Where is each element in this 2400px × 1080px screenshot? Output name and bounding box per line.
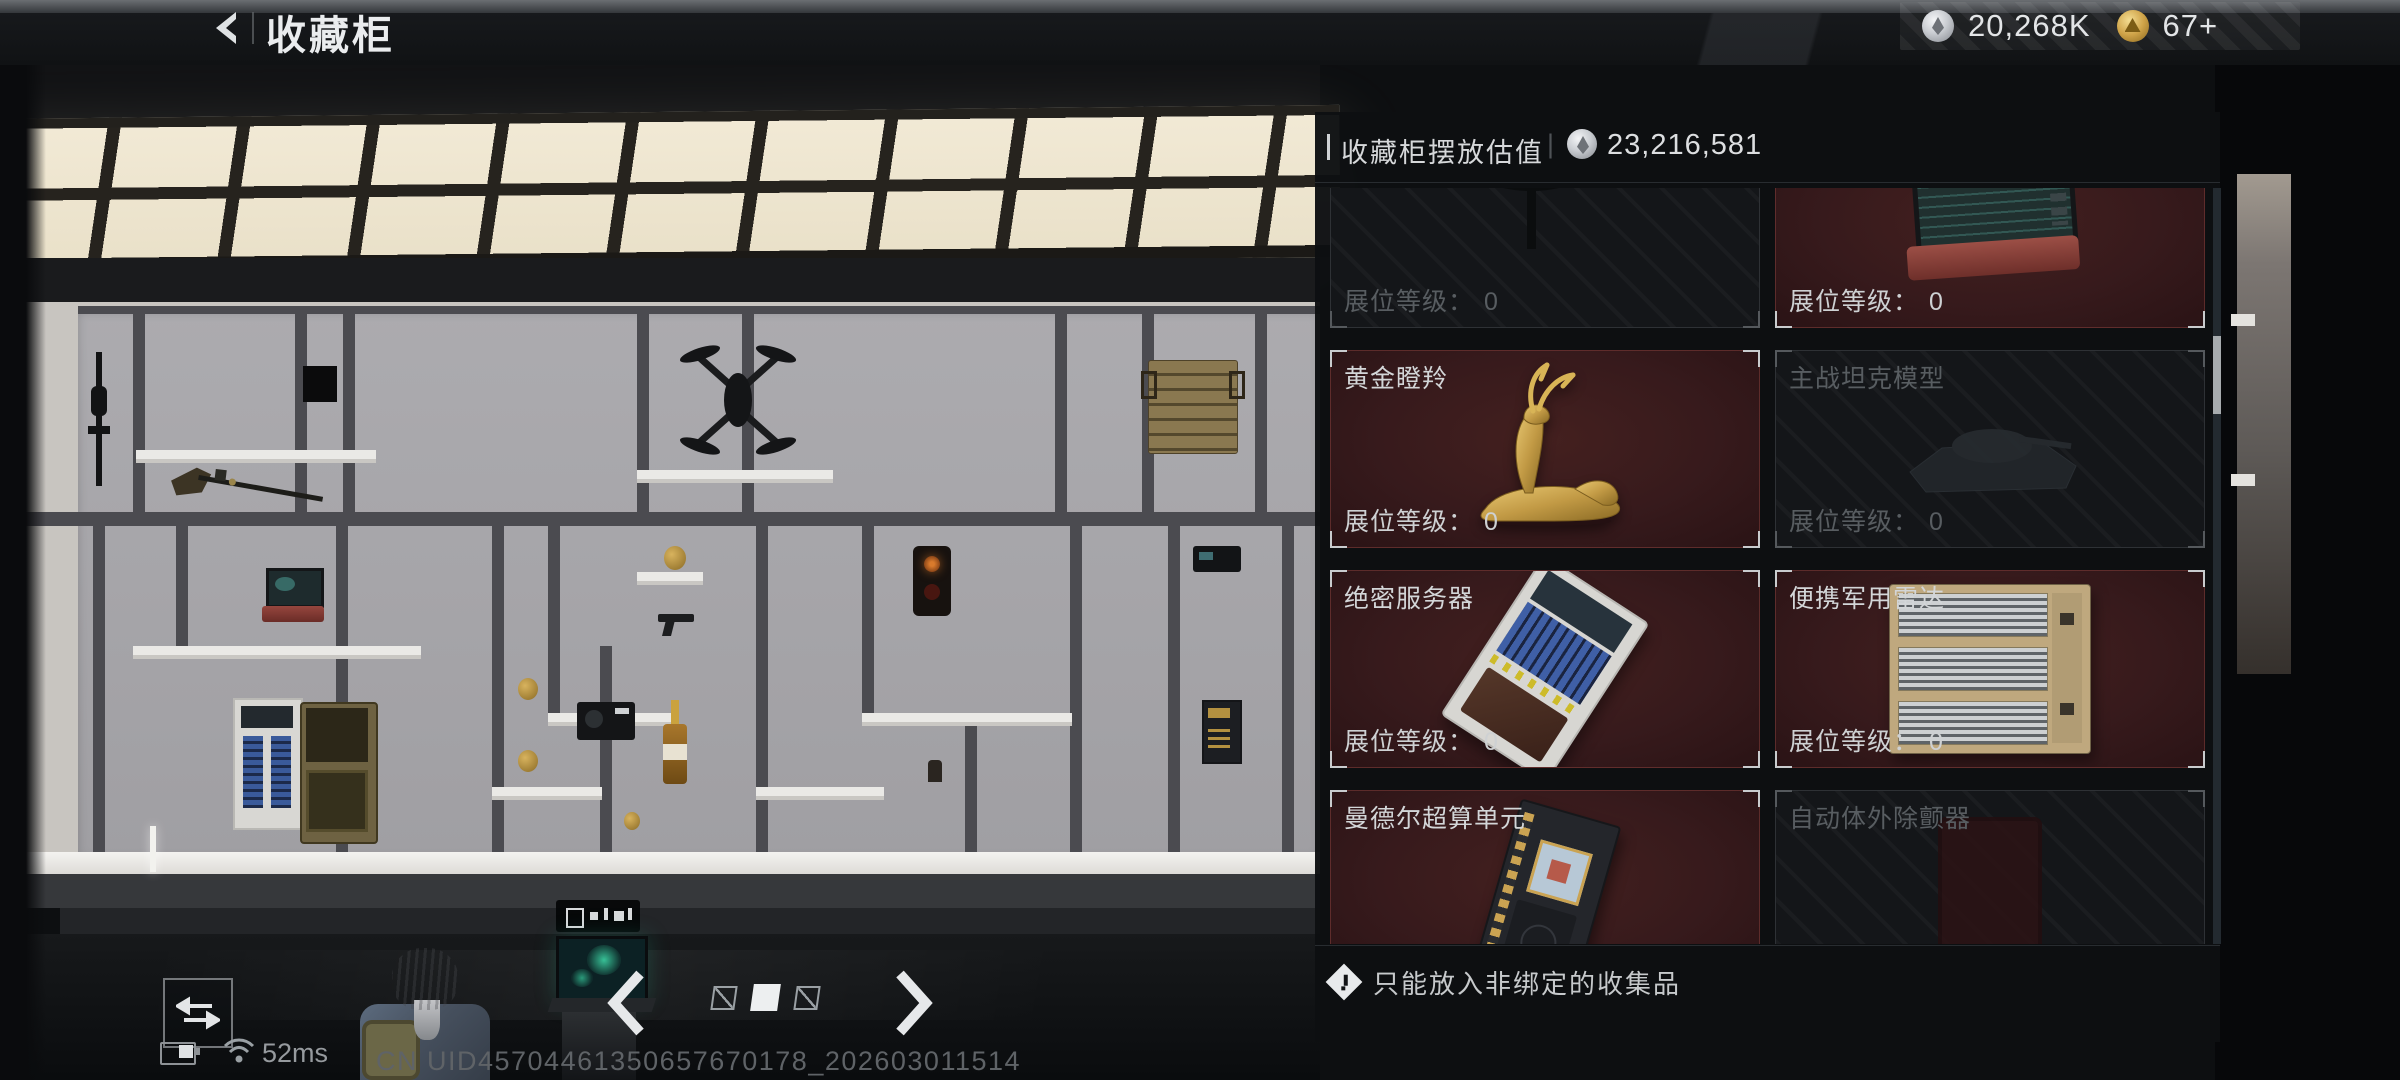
page-indicator (712, 984, 819, 1011)
ping-value: 52ms (262, 1038, 328, 1069)
currency-bar[interactable]: 20,268K 67+ (1900, 2, 2300, 50)
booth-level: 展位等级：0 (1344, 722, 1499, 758)
small-lamp (150, 826, 156, 872)
header-divider (1315, 182, 2220, 183)
shelf (637, 572, 703, 585)
back-button[interactable] (206, 8, 246, 48)
collectible-name: 绝密服务器 (1344, 579, 1474, 615)
collectible-name: 黄金瞪羚 (1344, 359, 1448, 395)
page-dot-inactive[interactable] (710, 986, 737, 1010)
shelf (637, 470, 833, 483)
collectible-name: 便携军用雷达 (1789, 579, 1945, 615)
collectible-name: 曼德尔超算单元 (1344, 799, 1526, 835)
ceiling-light-panels (0, 105, 1341, 271)
page-dot-inactive[interactable] (793, 986, 820, 1010)
wifi-icon (222, 1036, 256, 1064)
divider (78, 306, 1320, 314)
divider (133, 314, 145, 512)
signal-device-item (1193, 546, 1241, 572)
collectible-grid-viewport: 展位等级：0 展位等级：0 (1328, 188, 2206, 944)
page-title: 收藏柜 (266, 3, 395, 61)
interaction-marker (556, 900, 640, 932)
booth-level: 展位等级：0 (1789, 502, 1944, 538)
page-prev-button[interactable] (604, 968, 648, 1038)
booth-level: 展位等级：0 (1344, 502, 1499, 538)
gold-currency-value: 67+ (2163, 8, 2219, 44)
divider (548, 526, 560, 713)
divider (176, 526, 188, 646)
divider (1070, 526, 1082, 852)
divider (93, 526, 105, 852)
page-next-button[interactable] (892, 968, 936, 1038)
cabinet-side-wall (2237, 174, 2291, 674)
collectible-cell-6[interactable]: 曼德尔超算单元 展位等级：0 (1330, 790, 1760, 944)
restriction-notice: 只能放入非绑定的收集品 (1331, 962, 1681, 1002)
booth-level: 展位等级：0 (1789, 942, 1944, 944)
collectible-cell-0[interactable]: 展位等级：0 (1330, 188, 1760, 328)
divider (1282, 526, 1294, 852)
antique-musket-item (168, 458, 328, 516)
booth-level: 展位等级：0 (1344, 282, 1499, 318)
red-field-radio-icon (1875, 188, 2105, 290)
page-dot-active[interactable] (750, 984, 781, 1011)
collectible-cell-5[interactable]: 便携军用雷达 展位等级：0 (1775, 570, 2205, 768)
drone-item (678, 330, 798, 470)
divider (343, 314, 355, 512)
booth-level: 展位等级：0 (1344, 942, 1499, 944)
black-plaque-item (303, 366, 337, 402)
notice-text: 只能放入非绑定的收集品 (1373, 964, 1681, 1001)
right-scene (2215, 62, 2400, 1080)
valuation-panel: 收藏柜摆放估值 | 23,216,581 展位等级：0 (1315, 112, 2220, 1042)
collection-cabinet-screen: 收藏柜 20,268K 67+ 收藏柜摆放估值 | 23,216,581 (0, 0, 2400, 1080)
tank-model-icon (1880, 384, 2100, 514)
back-arrow-icon (206, 8, 246, 48)
shelf (133, 646, 421, 659)
silver-currency-value: 20,268K (1968, 8, 2091, 44)
trinket-item (624, 812, 640, 830)
divider (756, 526, 768, 852)
grid-bottom-divider (1315, 945, 2220, 946)
battery-icon (160, 1042, 196, 1065)
liquor-bottle-item (663, 700, 687, 784)
silver-coin-icon (1922, 10, 1954, 42)
character-hair (392, 948, 458, 1010)
scrollbar (2213, 188, 2221, 944)
field-radio-item (262, 566, 324, 624)
divider (1168, 526, 1180, 852)
gold-medal-item (664, 546, 686, 570)
collectible-name: 自动体外除颤器 (1789, 799, 1971, 835)
aed-device-icon (1938, 817, 2042, 944)
gold-coin-icon (2117, 10, 2149, 42)
divider (1055, 314, 1067, 512)
collectible-cell-3[interactable]: 主战坦克模型 展位等级：0 (1775, 350, 2205, 548)
divider (862, 526, 874, 713)
collectible-cell-1[interactable]: 展位等级：0 (1775, 188, 2205, 328)
alert-diamond-icon (1326, 964, 1363, 1001)
sniper-rifle-item (88, 352, 110, 486)
chevron-left-icon (604, 968, 648, 1038)
gold-medal-item (518, 750, 538, 772)
divider (600, 646, 612, 852)
scrollbar-thumb[interactable] (2213, 336, 2221, 414)
session-id: CN UID45704461350657670178_202603011514 (376, 1046, 1021, 1077)
chevron-right-icon (892, 968, 936, 1038)
shelf (492, 787, 602, 800)
divider (1255, 314, 1267, 512)
divider (492, 526, 504, 852)
booth-level: 展位等级：0 (1789, 282, 1944, 318)
collectible-cell-2[interactable]: 黄金瞪羚 展位等级：0 (1330, 350, 1760, 548)
server-tile-item (233, 698, 303, 830)
military-crate-item (1148, 360, 1238, 454)
camera-device-item (577, 702, 635, 740)
panel-title: 收藏柜摆放估值 (1341, 131, 1544, 170)
collectible-cell-4[interactable]: 绝密服务器 展位等级：0 (1330, 570, 1760, 768)
swap-arrows-icon (176, 993, 220, 1033)
header-separator: | (1547, 129, 1554, 160)
circuit-board-item (1202, 700, 1242, 764)
cabinet-base-shelf (0, 852, 1320, 874)
counter (60, 908, 1320, 934)
collectible-cell-7[interactable]: 自动体外除颤器 展位等级：0 (1775, 790, 2205, 944)
ceiling-gap (0, 258, 1320, 304)
field-case-item (300, 702, 378, 844)
valuation-amount: 23,216,581 (1607, 129, 1762, 162)
header-accent-bar (1327, 134, 1330, 160)
booth-level: 展位等级：0 (1789, 722, 1944, 758)
silver-coin-icon (1567, 129, 1597, 159)
traffic-light-item (913, 546, 951, 616)
mini-figure-item (928, 760, 942, 782)
collectible-name: 主战坦克模型 (1789, 359, 1945, 395)
left-shadow (0, 62, 46, 1080)
pistol-item (658, 614, 694, 636)
gold-medal-item (518, 678, 538, 700)
divider (965, 713, 977, 852)
panel-header: 收藏柜摆放估值 | 23,216,581 (1315, 112, 2220, 180)
shelf (862, 713, 1072, 726)
shelf (756, 787, 884, 800)
title-divider (252, 12, 254, 44)
